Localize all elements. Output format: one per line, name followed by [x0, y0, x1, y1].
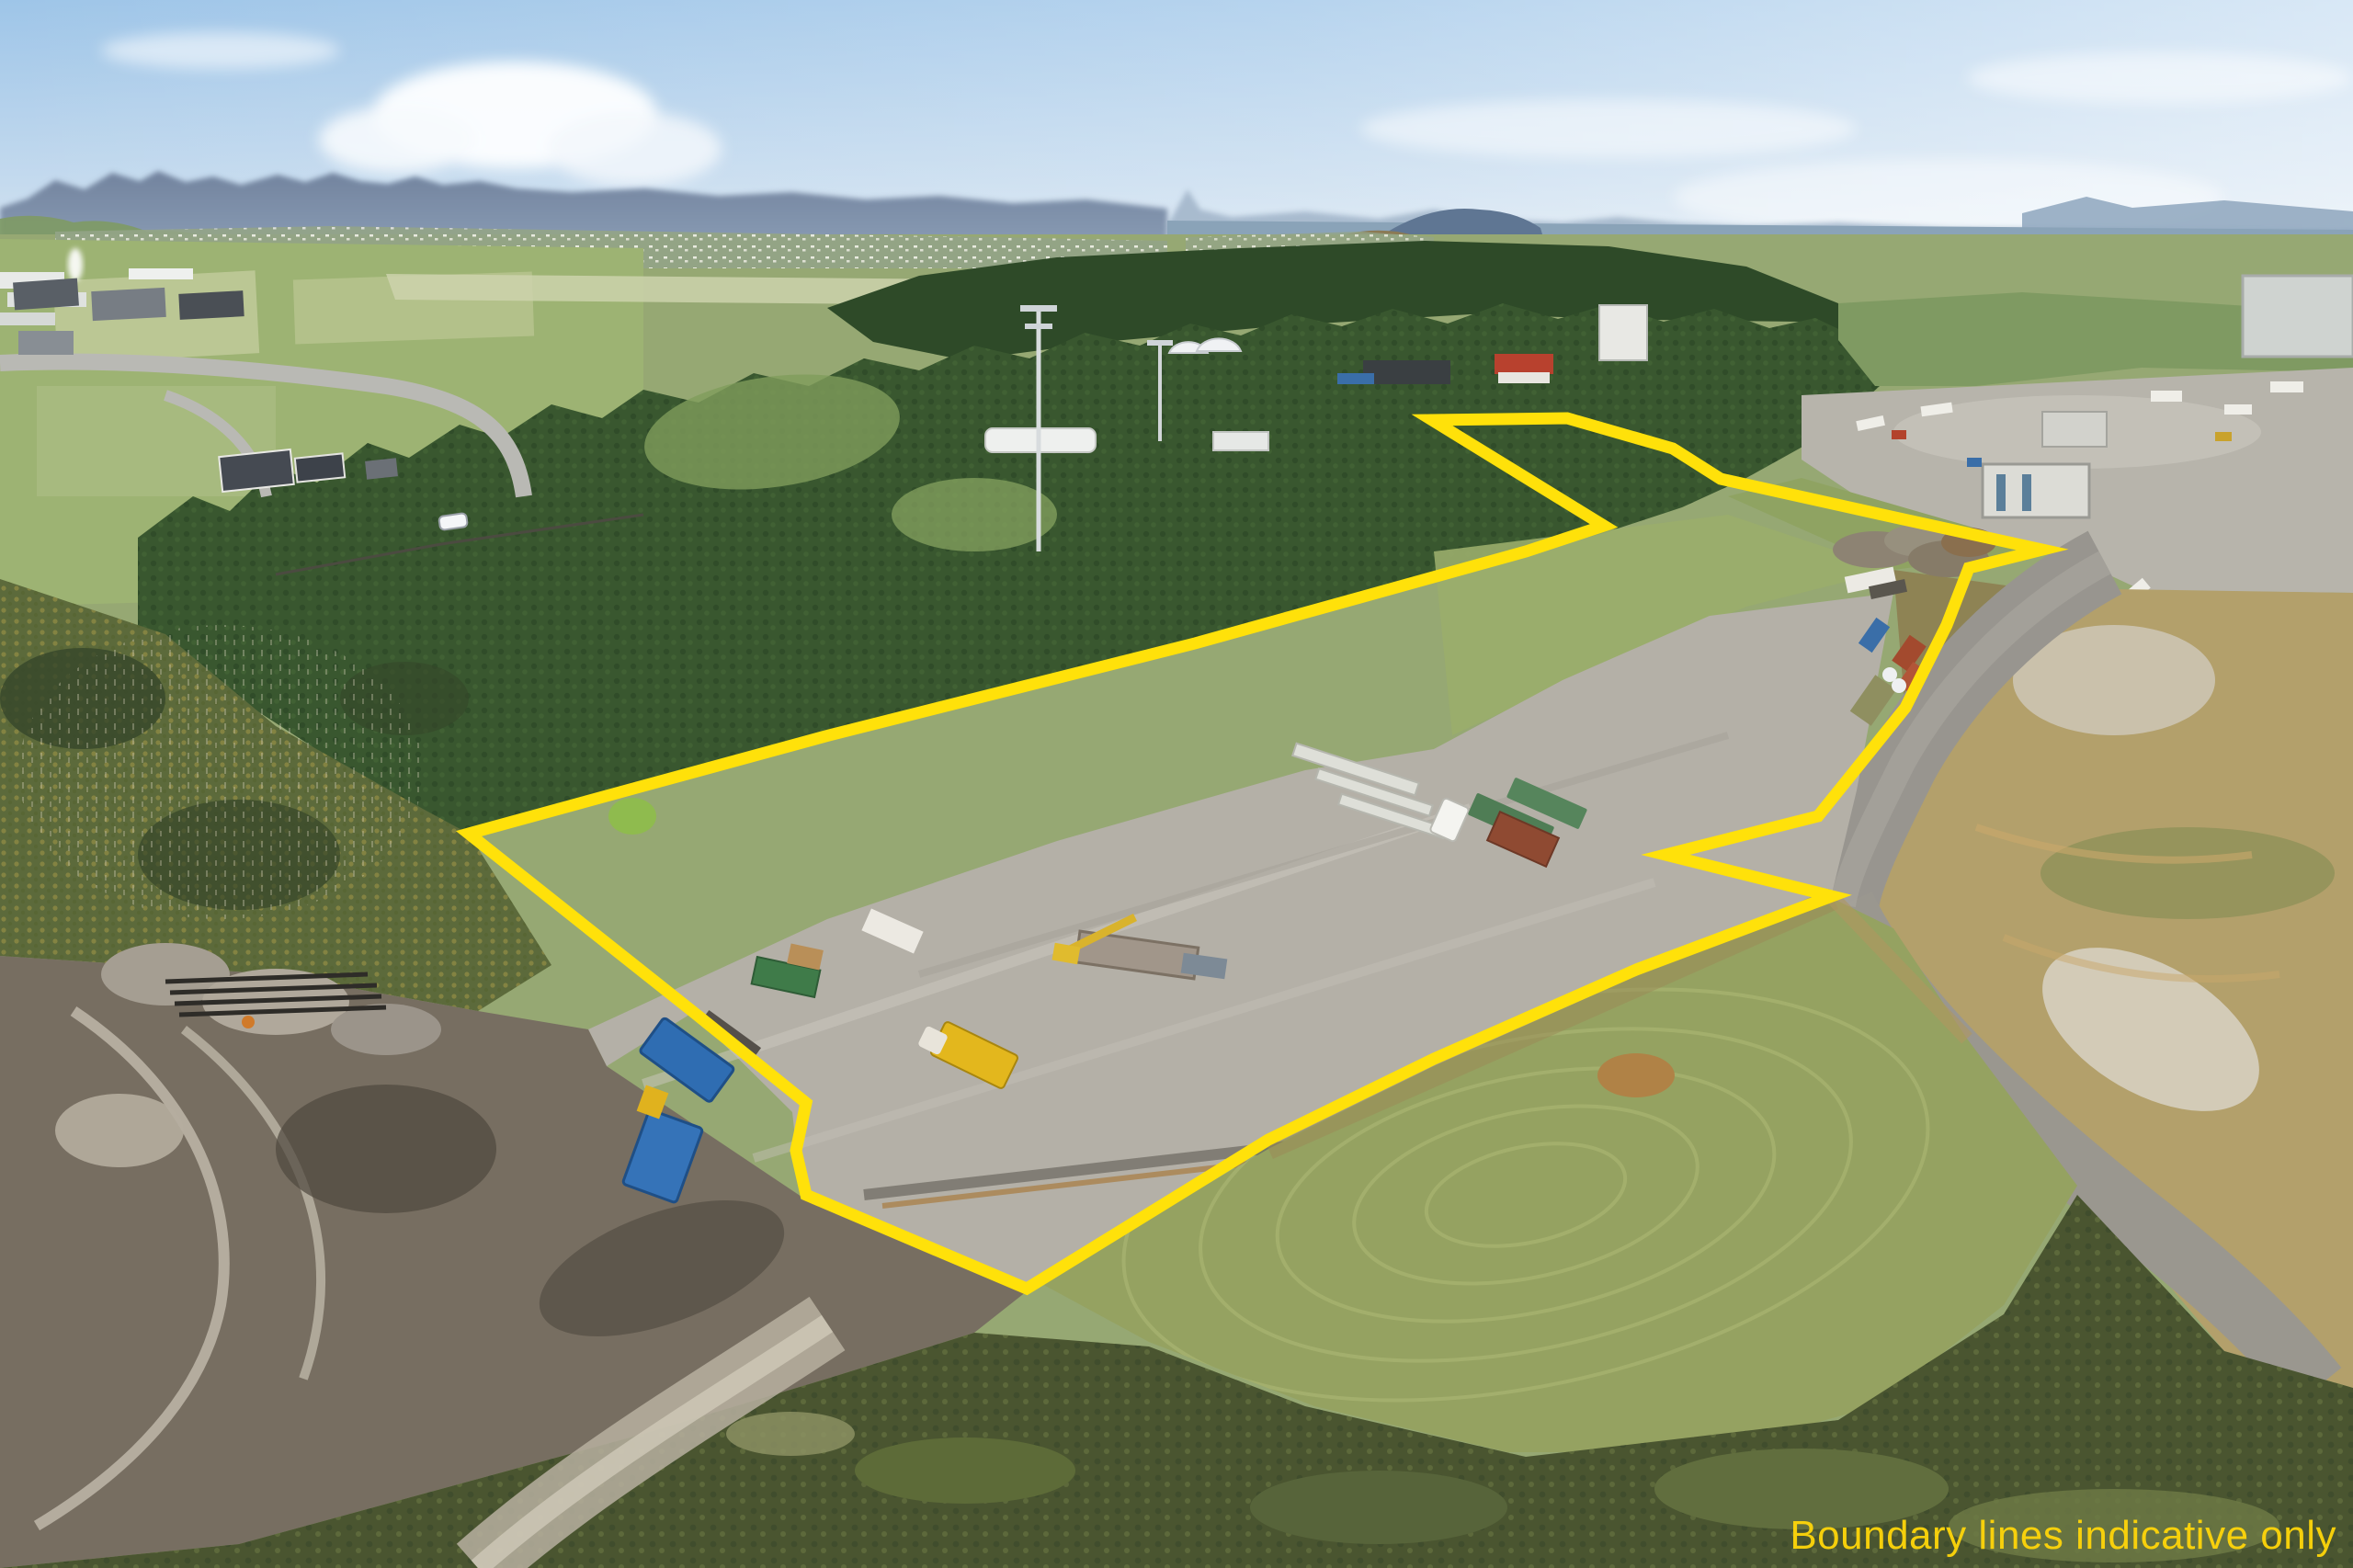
dirt-mound: [1597, 1053, 1675, 1097]
scene: [0, 0, 2353, 1568]
boundary-caption: Boundary lines indicative only: [1790, 1513, 2336, 1559]
large-warehouse: [2243, 276, 2353, 357]
aerial-photo: Boundary lines indicative only: [0, 0, 2353, 1568]
orange-cone: [242, 1016, 255, 1028]
steam-plume: [68, 248, 83, 281]
red-roof-building: [1495, 354, 1553, 374]
bright-green-tree: [608, 798, 656, 835]
white-warehouse-mid: [1599, 305, 1647, 360]
white-car: [438, 513, 468, 530]
dark-buildings: [1363, 360, 1450, 384]
